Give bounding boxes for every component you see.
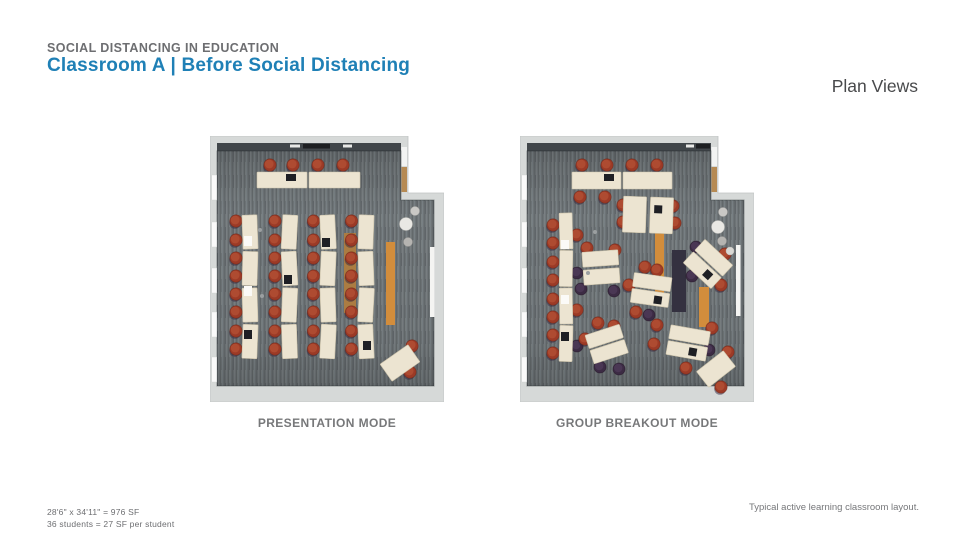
laptop [286, 174, 296, 181]
footnote-dimensions: 28'6" x 34'11" = 976 SF [47, 506, 174, 518]
wall-whiteboard [736, 245, 741, 316]
mobile-screen [672, 250, 686, 312]
floor-plan-presentation-mode [210, 136, 444, 402]
page-title: Classroom A | Before Social Distancing [47, 55, 410, 77]
wall-display [303, 144, 330, 149]
wall-marker [290, 145, 300, 148]
wall-marker [343, 145, 352, 148]
footnote-room-stats: 28'6" x 34'11" = 976 SF 36 students = 27… [47, 506, 174, 530]
bench-orange-2 [699, 287, 709, 327]
wall-display [696, 144, 710, 149]
slide-canvas: SOCIAL DISTANCING IN EDUCATION Classroom… [0, 0, 960, 540]
floor-plan-group-breakout-mode [520, 136, 754, 402]
bench-orange [386, 242, 395, 325]
plan-label-presentation-mode: PRESENTATION MODE [210, 416, 444, 430]
door [712, 167, 718, 192]
sidelight [402, 147, 408, 166]
laptop [604, 174, 614, 181]
plan-label-group-breakout-mode: GROUP BREAKOUT MODE [520, 416, 754, 430]
wall-whiteboard [430, 247, 435, 317]
header-eyebrow: SOCIAL DISTANCING IN EDUCATION [47, 41, 279, 55]
sidelight [712, 147, 718, 166]
wall-marker [686, 145, 694, 148]
footnote-students: 36 students = 27 SF per student [47, 518, 174, 530]
corner-label: Plan Views [832, 76, 918, 97]
footnote-caption: Typical active learning classroom layout… [749, 502, 919, 513]
door [402, 167, 408, 192]
